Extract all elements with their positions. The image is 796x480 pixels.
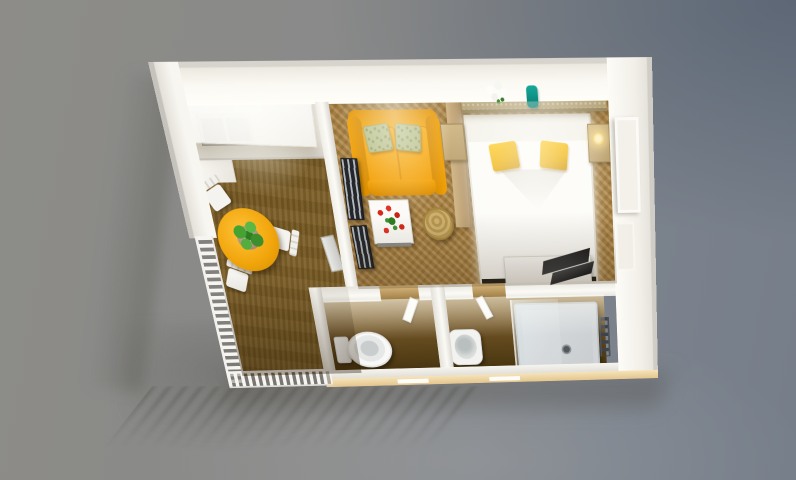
floorplan (148, 57, 658, 390)
towel-radiator[interactable] (599, 317, 611, 356)
wall-east (607, 57, 658, 374)
nightstand-left[interactable] (440, 123, 467, 160)
sofa[interactable] (345, 109, 448, 198)
duvet-fold (500, 169, 570, 211)
bedside-lamp[interactable] (592, 132, 604, 145)
coffee-table[interactable] (368, 199, 414, 244)
wall-picture[interactable] (614, 117, 640, 213)
green-cushion-right (395, 123, 421, 152)
yellow-pillow-left (488, 141, 520, 172)
3d-view-viewport[interactable] (0, 0, 796, 480)
teal-vase (526, 85, 539, 108)
sofa-front-edge (367, 179, 437, 196)
wall-north (148, 57, 653, 106)
flower-bouquet (479, 78, 516, 110)
fascia-window-2 (489, 376, 520, 381)
toilet-bowl (344, 331, 394, 368)
wall-picture-2 (616, 222, 636, 271)
toilet[interactable] (332, 331, 396, 368)
potted-plant[interactable] (225, 218, 271, 257)
fascia-window-1 (397, 379, 429, 384)
balcony-railing-bottom (226, 369, 333, 389)
railing-shadow-stripes (104, 386, 482, 448)
yellow-pillow-right (540, 140, 569, 170)
